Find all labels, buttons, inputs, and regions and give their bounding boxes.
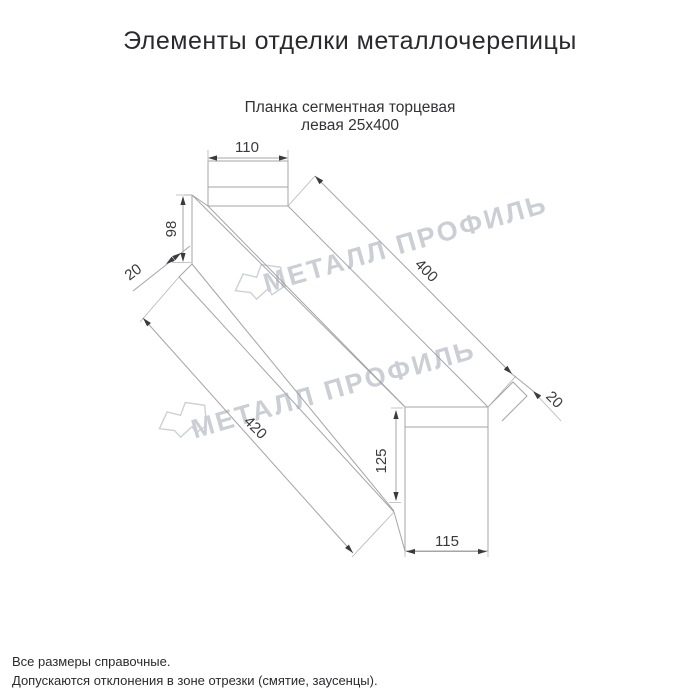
dim-end-face-height-label: 125	[373, 448, 390, 473]
dim-left-face-height-label: 98	[163, 221, 180, 238]
footer-note-line2: Допускаются отклонения в зоне отрезки (с…	[12, 671, 378, 690]
dim-left-lip-label: 20	[122, 261, 146, 285]
footer-note-line1: Все размеры справочные.	[12, 652, 378, 671]
watermark-text: МЕТАЛЛ ПРОФИЛЬ	[188, 334, 479, 444]
watermark-text: МЕТАЛЛ ПРОФИЛЬ	[260, 188, 551, 298]
dim-end-lip-label: 20	[542, 388, 566, 412]
dim-length-top-label: 400	[411, 256, 441, 286]
footer-notes: Все размеры справочные. Допускаются откл…	[12, 652, 378, 690]
dim-top-tab-width-label: 110	[235, 139, 259, 156]
dim-end-face-width-label: 115	[435, 533, 459, 550]
technical-drawing: МЕТАЛЛ ПРОФИЛЬ МЕТАЛЛ ПРОФИЛЬ	[0, 0, 700, 700]
catalog-drawing-page: { "header": { "title": "Элементы отделки…	[0, 0, 700, 700]
